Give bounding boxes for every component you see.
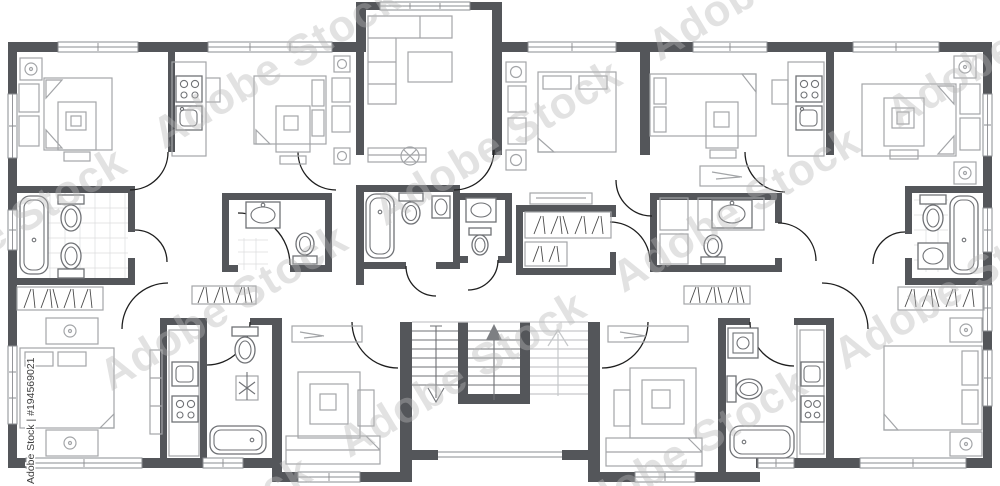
tap-icon <box>236 372 258 400</box>
door-arc <box>616 180 652 216</box>
toilet-icon <box>232 327 258 363</box>
floor-plan-image: Adobe Stock Adobe Stock Adobe Stock Adob… <box>0 0 1000 486</box>
bed-icon <box>650 74 756 136</box>
toilet-icon <box>469 228 491 255</box>
tv-stand-icon <box>276 106 310 164</box>
stove-icon <box>796 76 822 102</box>
nightstand-icon <box>950 318 982 342</box>
nightstand-icon <box>46 430 98 456</box>
speaker-corner-icon <box>954 162 976 184</box>
walls <box>8 2 992 482</box>
kitchen-sink-icon <box>172 362 198 386</box>
bed-icon <box>884 346 982 430</box>
watermark-text: Adobe Stock <box>639 0 904 71</box>
stove-icon <box>172 396 198 422</box>
sofa-icon <box>19 84 39 146</box>
door-arc <box>135 230 167 262</box>
kitchen-sink-icon <box>796 106 822 130</box>
toilet-icon <box>920 195 946 231</box>
wardrobe-icon <box>525 242 567 266</box>
wash-basin-icon <box>466 198 496 222</box>
watermark-text: Adobe Stock <box>329 281 594 467</box>
lamp-icon <box>506 62 526 82</box>
bathtub-icon <box>210 426 266 454</box>
nightstand-icon <box>46 318 98 344</box>
door-arc <box>406 266 436 296</box>
wardrobe-icon <box>525 212 611 238</box>
door-arc <box>778 223 816 261</box>
door-arc <box>298 152 336 190</box>
lamp-icon <box>334 56 350 72</box>
door-arc <box>130 152 168 190</box>
lamp-icon <box>334 148 350 164</box>
nightstand-icon <box>950 432 982 456</box>
nightstand-icon <box>332 78 350 132</box>
entrance-threshold <box>438 452 562 457</box>
speaker-corner-icon <box>20 58 42 80</box>
bed-icon <box>44 78 112 150</box>
door-arc <box>873 232 905 264</box>
door-arc <box>602 322 648 368</box>
desk-icon <box>292 326 362 342</box>
closet-d <box>525 212 611 266</box>
dresser-icon <box>530 193 592 204</box>
door-arc <box>468 260 498 290</box>
watermark-text: Adobe Stock <box>878 0 1000 137</box>
wc-c <box>466 198 496 255</box>
wash-basin-icon <box>246 202 280 228</box>
coffee-table-icon <box>408 52 452 82</box>
wardrobe-icon <box>684 286 750 304</box>
door-arc <box>352 322 398 368</box>
wardrobe-icon <box>17 287 103 310</box>
stock-credit-label: Adobe Stock | #194569021 <box>25 357 37 484</box>
washing-machine-icon <box>728 328 758 358</box>
tv-stand-icon <box>706 102 738 158</box>
